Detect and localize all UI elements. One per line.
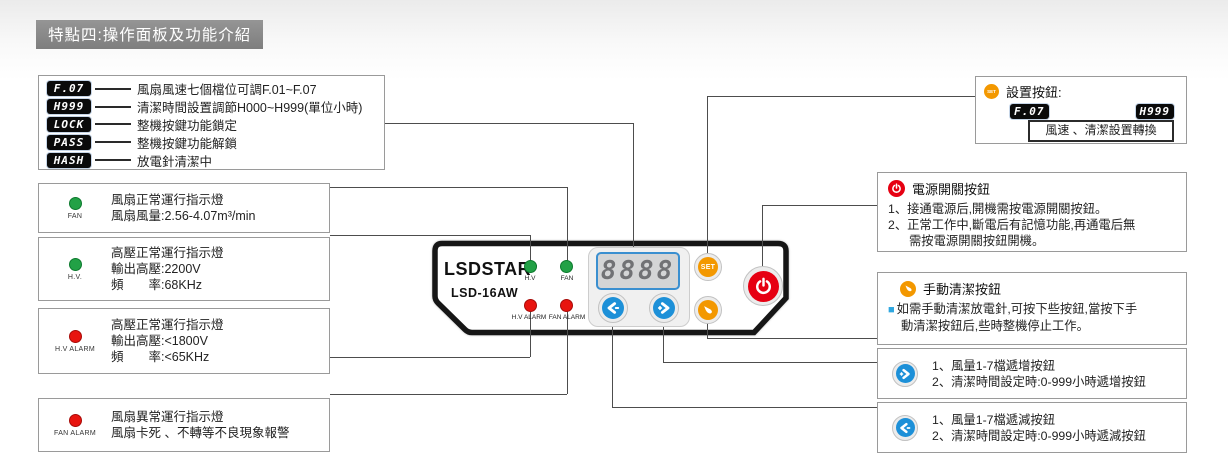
- connector-line: [330, 394, 567, 395]
- connector-line: [633, 123, 634, 253]
- connector-line: [385, 123, 633, 124]
- seven-seg-tag: H999: [1136, 104, 1175, 119]
- legend-row: LOCK 整機按鍵功能鎖定: [47, 116, 376, 134]
- legend-row: HASH 放電針清潔中: [47, 151, 376, 169]
- manual-clean-button[interactable]: [694, 296, 722, 324]
- legend-dash: [95, 123, 131, 125]
- legend-dash: [95, 141, 131, 143]
- seven-seg-tag: H999: [47, 99, 91, 114]
- connector-line: [612, 407, 877, 408]
- connector-line: [663, 321, 664, 362]
- arrow-left-minus-icon: [605, 300, 621, 316]
- connector-line: [707, 96, 708, 253]
- seven-seg-tag: F.07: [47, 81, 91, 96]
- connector-line: [762, 205, 763, 266]
- legend-dash: [95, 106, 131, 108]
- connector-line: [707, 96, 975, 97]
- red-led-icon: [69, 330, 82, 343]
- hv-led: [524, 260, 537, 273]
- decrement-button-icon: [892, 415, 918, 441]
- seven-seg-tag: HASH: [47, 153, 91, 168]
- fan-alarm-indicator-box: FAN ALARM 風扇異常運行指示燈 風扇卡死 、不轉等不良現象報警: [38, 398, 330, 452]
- connector-line: [530, 235, 531, 261]
- toggle-description: 風速 、清潔設置轉換: [1028, 120, 1174, 142]
- clean-callout-box: 手動清潔按鈕 ■如需手動清潔放電針,可按下些按鈕,當按下手 動清潔按鈕后,些時整…: [877, 272, 1187, 345]
- clean-box-title: 手動清潔按鈕: [923, 279, 1001, 298]
- set-callout-box: SET 設置按鈕: F.07 H999 風速 、清潔設置轉換: [975, 76, 1187, 144]
- connector-line: [707, 322, 708, 338]
- increment-button-icon: [892, 361, 918, 387]
- power-callout-box: 電源開關按鈕 1、接通電源后,開機需按電源開關按鈕。 2、正常工作中,斷電后有記…: [877, 172, 1187, 252]
- hv-indicator-box: H.V. 高壓正常運行指示燈 輸出高壓:2200V 頻 率:68KHz: [38, 237, 330, 301]
- power-icon: [888, 180, 905, 197]
- arrow-right-plus-icon: [898, 367, 912, 381]
- fan-alarm-led: [560, 299, 573, 312]
- connector-line: [567, 311, 568, 394]
- seven-segment-display: 8888: [596, 252, 680, 290]
- hv-alarm-led: [524, 299, 537, 312]
- power-button[interactable]: [743, 266, 783, 306]
- power-box-title: 電源開關按鈕: [912, 179, 990, 198]
- connector-line: [612, 321, 613, 407]
- blue-square-bullet: ■: [888, 304, 895, 316]
- model-number: LSD-16AW: [451, 286, 518, 300]
- seven-seg-tag: PASS: [47, 135, 91, 150]
- legend-row: F.07 風扇風速七個檔位可調F.01~F.07: [47, 80, 376, 98]
- power-icon: [754, 277, 773, 296]
- legend-dash: [95, 159, 131, 161]
- red-led-icon: [69, 414, 82, 427]
- brand-logo: LSDSTAR®: [444, 259, 538, 280]
- fan-indicator-box: FAN 風扇正常運行指示燈 風扇風量:2.56-4.07m³/min: [38, 183, 330, 233]
- page-title: 特點四:操作面板及功能介紹: [36, 20, 263, 49]
- set-icon: SET: [984, 84, 999, 99]
- connector-line: [707, 338, 877, 339]
- legend-row: H999 清潔時間設置調節H000~H999(單位小時): [47, 98, 376, 116]
- connector-line: [330, 235, 530, 236]
- set-box-title: 設置按鈕:: [1006, 82, 1062, 101]
- hv-alarm-indicator-box: H.V ALARM 高壓正常運行指示燈 輸出高壓:<1800V 頻 率:<65K…: [38, 308, 330, 374]
- legend-box: F.07 風扇風速七個檔位可調F.01~F.07 H999 清潔時間設置調節H0…: [38, 75, 385, 170]
- legend-row: PASS 整機按鍵功能解鎖: [47, 133, 376, 151]
- connector-line: [330, 357, 530, 358]
- set-button[interactable]: SET: [694, 253, 722, 281]
- increment-callout-box: 1、風量1-7檔遞增按鈕 2、清潔時間設定時:0-999小時遞增按鈕: [877, 348, 1187, 399]
- arrow-right-plus-icon: [656, 300, 672, 316]
- seven-seg-tag: F.07: [1010, 104, 1049, 119]
- arrow-left-minus-icon: [898, 421, 912, 435]
- connector-line: [663, 362, 877, 363]
- broom-icon: [900, 281, 916, 297]
- broom-icon: [701, 303, 715, 317]
- increment-button[interactable]: [649, 293, 679, 323]
- green-led-icon: [69, 197, 82, 210]
- connector-line: [330, 187, 567, 188]
- decrement-callout-box: 1、風量1-7檔遞減按鈕 2、清潔時間設定時:0-999小時遞減按鈕: [877, 402, 1187, 453]
- decrement-button[interactable]: [598, 293, 628, 323]
- green-led-icon: [69, 258, 82, 271]
- connector-line: [762, 205, 877, 206]
- legend-dash: [95, 88, 131, 90]
- fan-led: [560, 260, 573, 273]
- seven-seg-tag: LOCK: [47, 117, 91, 132]
- connector-line: [567, 187, 568, 261]
